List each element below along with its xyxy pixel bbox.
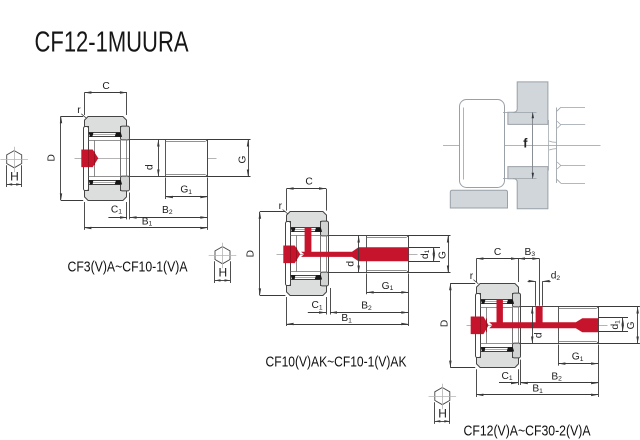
svg-text:CF3(V)A~CF10-1(V)A: CF3(V)A~CF10-1(V)A bbox=[68, 260, 188, 276]
svg-text:D: D bbox=[46, 154, 57, 161]
svg-text:C: C bbox=[494, 247, 501, 258]
svg-text:d: d bbox=[144, 164, 155, 170]
svg-text:CF10(V)AK~CF10-1(V)AK: CF10(V)AK~CF10-1(V)AK bbox=[266, 355, 407, 371]
svg-text:G: G bbox=[238, 155, 249, 163]
svg-text:r: r bbox=[77, 105, 81, 116]
svg-text:G: G bbox=[438, 251, 449, 259]
svg-text:r: r bbox=[470, 271, 474, 282]
svg-text:G: G bbox=[626, 321, 637, 329]
svg-text:d: d bbox=[345, 261, 356, 267]
svg-text:C: C bbox=[305, 177, 312, 188]
svg-text:D: D bbox=[439, 320, 450, 327]
svg-text:C: C bbox=[102, 81, 109, 92]
svg-text:r: r bbox=[279, 201, 283, 212]
svg-text:H: H bbox=[438, 406, 447, 420]
svg-text:D: D bbox=[245, 250, 256, 257]
svg-text:H: H bbox=[10, 169, 19, 183]
svg-text:d: d bbox=[534, 332, 545, 338]
svg-text:CF12-1MUURA: CF12-1MUURA bbox=[35, 27, 189, 59]
svg-text:CF12(V)A~CF30-2(V)A: CF12(V)A~CF30-2(V)A bbox=[464, 424, 591, 440]
svg-text:H: H bbox=[218, 265, 227, 279]
